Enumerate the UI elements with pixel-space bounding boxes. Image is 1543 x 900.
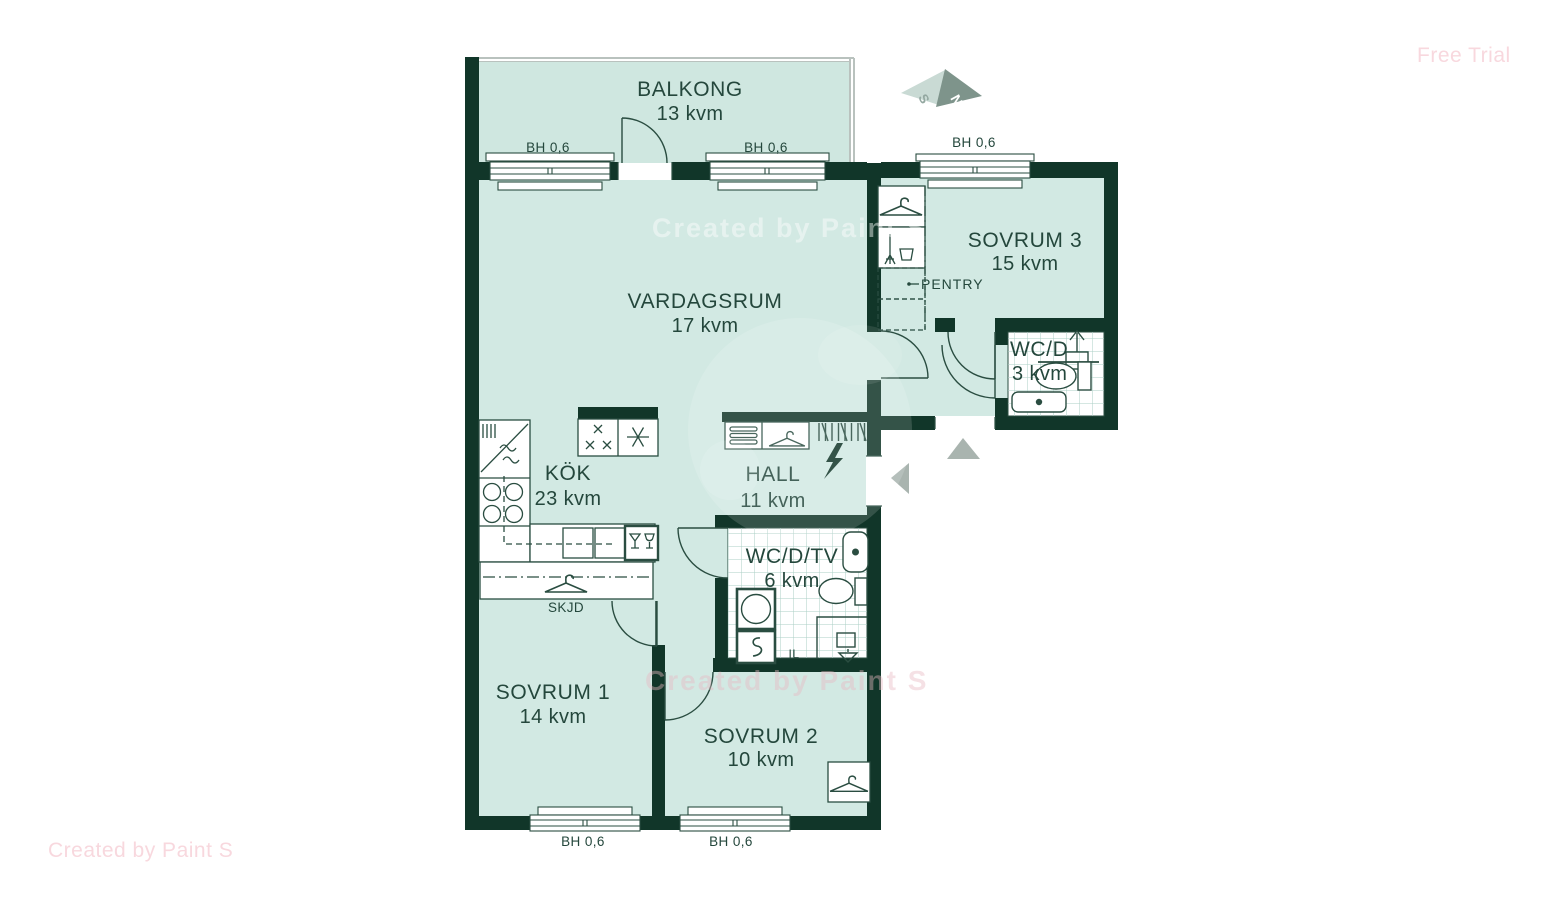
area-label-sovrum1: 14 kvm <box>520 706 587 728</box>
floorplan-drawing: S N BALKONG 13 kvm VARDAGSRUM 17 kvm SOV… <box>0 0 1543 900</box>
watermark-center-top: Created by Paint S <box>652 213 927 243</box>
window-balcony-right <box>706 153 829 190</box>
pentry-label: PENTRY <box>921 276 984 292</box>
window-sovrum1 <box>530 807 640 831</box>
watermark-center-bottom: Created by Paint S <box>645 665 928 696</box>
window-sovrum2 <box>680 807 790 831</box>
kitchen-peninsula <box>578 419 658 456</box>
window-balcony-left <box>486 153 614 190</box>
window-label: BH 0,6 <box>709 834 753 849</box>
room-label-wcdtv: WC/D/TV <box>746 545 839 568</box>
dishwasher-icon <box>625 526 658 560</box>
free-trial-watermark: Free Trial <box>1417 44 1511 67</box>
room-label-balkong: BALKONG <box>637 78 743 101</box>
washing-machine-icon <box>737 589 775 629</box>
window-label: BH 0,6 <box>952 135 996 150</box>
washbasin-icon <box>843 532 868 572</box>
area-label-vardagsrum: 17 kvm <box>672 315 739 337</box>
area-label-sovrum3: 15 kvm <box>992 253 1059 275</box>
entry-arrow-up <box>947 438 980 459</box>
area-label-sovrum2: 10 kvm <box>728 749 795 771</box>
area-label-wcdtv: 6 kvm <box>764 570 819 592</box>
room-label-sovrum1: SOVRUM 1 <box>496 681 611 704</box>
room-label-vardagsrum: VARDAGSRUM <box>628 290 783 313</box>
il-label: IL <box>788 647 799 661</box>
washbasin-icon <box>1012 392 1066 412</box>
room-label-kok: KÖK <box>545 462 591 485</box>
skjd-label: SKJD <box>548 600 584 615</box>
area-label-kok: 23 kvm <box>535 488 602 510</box>
dryer-icon <box>737 631 775 663</box>
balcony-door-frame <box>618 162 672 180</box>
room-label-sovrum3: SOVRUM 3 <box>968 229 1083 252</box>
window-label: BH 0,6 <box>561 834 605 849</box>
compass-icon: S N <box>901 69 982 108</box>
area-label-balkong: 13 kvm <box>657 103 724 125</box>
room-label-sovrum2: SOVRUM 2 <box>704 725 819 748</box>
floorplan-canvas: S N BALKONG 13 kvm VARDAGSRUM 17 kvm SOV… <box>0 0 1543 900</box>
logo-watermark-blob <box>688 318 912 542</box>
sovrum2-wardrobe <box>828 762 870 802</box>
window-sovrum3 <box>916 154 1034 188</box>
toilet-icon <box>819 578 867 605</box>
created-by-watermark: Created by Paint S <box>48 839 233 862</box>
area-label-wcd: 3 kvm <box>1012 363 1067 385</box>
window-label: BH 0,6 <box>744 140 788 155</box>
window-label: BH 0,6 <box>526 140 570 155</box>
room-label-wcd: WC/D <box>1010 338 1068 361</box>
